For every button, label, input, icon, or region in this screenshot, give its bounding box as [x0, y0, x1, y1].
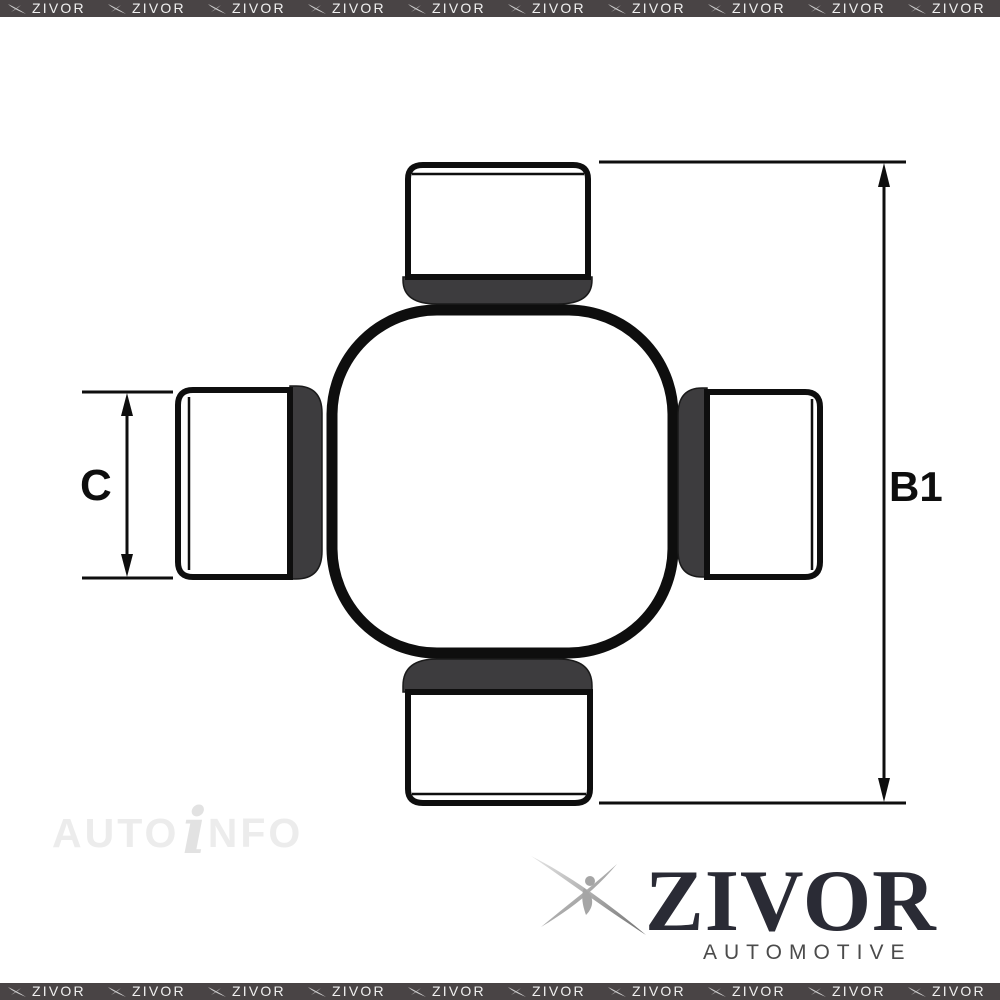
- watermark-unit: ZIVOR: [0, 983, 100, 1000]
- zivor-star-icon: [525, 852, 655, 942]
- watermark-brand-text: ZIVOR: [232, 983, 286, 1000]
- zivor-swoosh-icon: [107, 986, 127, 998]
- watermark-strip-bottom: ZIVOR ZIVOR ZIVOR ZIVOR ZIVOR ZIVOR ZIVO…: [0, 983, 1000, 1000]
- watermark-brand-text: ZIVOR: [132, 983, 186, 1000]
- dimension-c: C: [80, 392, 173, 578]
- zivor-swoosh-icon: [207, 986, 227, 998]
- dimension-c-label: C: [80, 461, 112, 510]
- cross-body: [332, 310, 673, 653]
- watermark-brand-text: ZIVOR: [832, 983, 886, 1000]
- watermark-brand-text: ZIVOR: [432, 983, 486, 1000]
- autoinfo-part3: NFO: [208, 810, 304, 857]
- brand-tagline: AUTOMOTIVE: [703, 941, 911, 965]
- bearing-cap-left: [178, 390, 290, 577]
- zivor-swoosh-icon: [907, 986, 927, 998]
- watermark-brand-text: ZIVOR: [732, 983, 786, 1000]
- watermark-unit: ZIVOR: [900, 983, 1000, 1000]
- watermark-brand-text: ZIVOR: [632, 983, 686, 1000]
- watermark-unit: ZIVOR: [800, 983, 900, 1000]
- zivor-swoosh-icon: [7, 986, 27, 998]
- seal-collar-right: [678, 388, 707, 577]
- watermark-unit: ZIVOR: [600, 983, 700, 1000]
- watermark-unit: ZIVOR: [100, 983, 200, 1000]
- watermark-unit: ZIVOR: [500, 983, 600, 1000]
- watermark-unit: ZIVOR: [400, 983, 500, 1000]
- zivor-swoosh-icon: [607, 986, 627, 998]
- watermark-unit: ZIVOR: [700, 983, 800, 1000]
- autoinfo-watermark: AUTO i NFO: [52, 788, 303, 863]
- product-image-canvas: ZIVOR ZIVOR ZIVOR ZIVOR ZIVOR ZIVOR ZIVO…: [0, 0, 1000, 1000]
- bearing-cap-right: [707, 392, 820, 577]
- dimension-b1-label: B1: [889, 463, 943, 510]
- watermark-brand-text: ZIVOR: [532, 983, 586, 1000]
- watermark-unit: ZIVOR: [300, 983, 400, 1000]
- zivor-swoosh-icon: [807, 986, 827, 998]
- seal-collar-top: [403, 277, 592, 304]
- watermark-brand-text: ZIVOR: [32, 983, 86, 1000]
- watermark-brand-text: ZIVOR: [332, 983, 386, 1000]
- seal-collar-bottom: [403, 659, 592, 692]
- bearing-cap-top: [408, 165, 588, 277]
- zivor-swoosh-icon: [307, 986, 327, 998]
- brand-name: ZIVOR: [645, 858, 937, 946]
- watermark-unit: ZIVOR: [200, 983, 300, 1000]
- zivor-swoosh-icon: [707, 986, 727, 998]
- seal-collar-left: [290, 386, 322, 579]
- autoinfo-part1: AUTO: [52, 810, 179, 857]
- zivor-swoosh-icon: [407, 986, 427, 998]
- bearing-cap-bottom: [408, 692, 590, 803]
- zivor-swoosh-icon: [507, 986, 527, 998]
- autoinfo-i: i: [182, 794, 206, 869]
- watermark-brand-text: ZIVOR: [932, 983, 986, 1000]
